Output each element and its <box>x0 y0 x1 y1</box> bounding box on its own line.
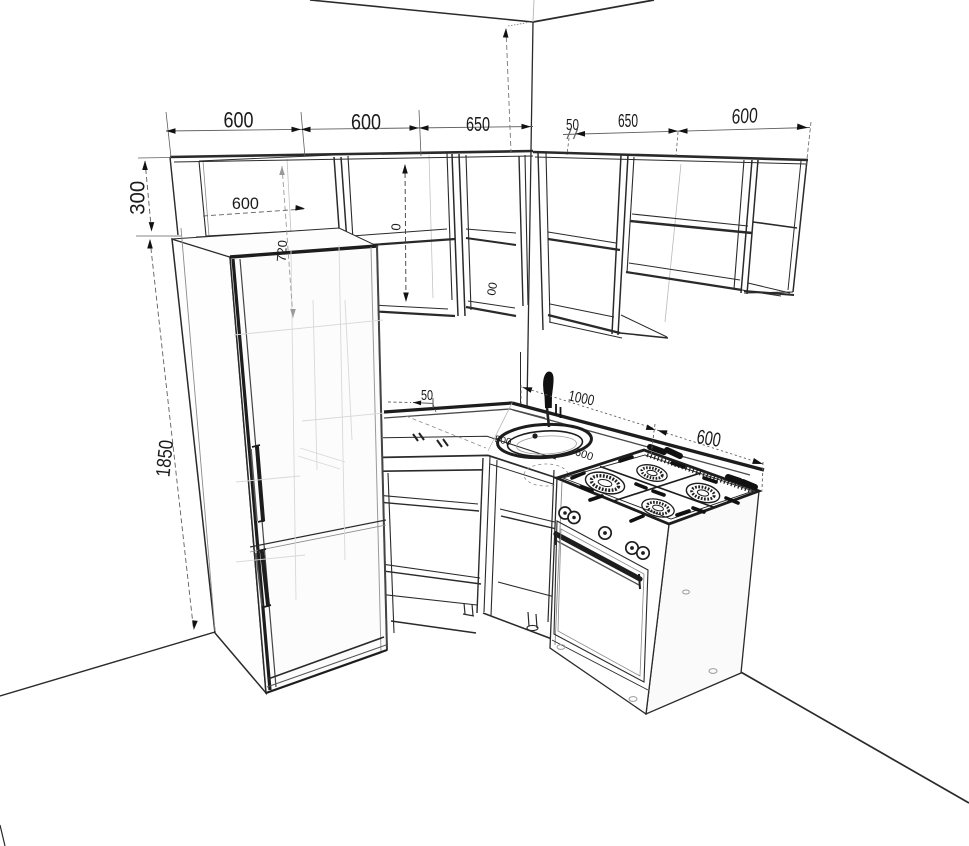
svg-text:300: 300 <box>127 181 150 215</box>
svg-text:650: 650 <box>466 114 490 136</box>
svg-text:1850: 1850 <box>152 439 178 478</box>
svg-text:600: 600 <box>232 194 259 213</box>
svg-text:600: 600 <box>695 426 722 452</box>
svg-text:600: 600 <box>351 110 381 135</box>
svg-text:00: 00 <box>484 281 500 297</box>
svg-text:600: 600 <box>731 104 759 129</box>
svg-text:50: 50 <box>566 117 579 134</box>
svg-text:50: 50 <box>421 387 433 404</box>
svg-text:0: 0 <box>388 223 403 231</box>
svg-text:720: 720 <box>274 240 290 263</box>
svg-text:650: 650 <box>618 111 638 131</box>
svg-text:600: 600 <box>224 108 254 133</box>
